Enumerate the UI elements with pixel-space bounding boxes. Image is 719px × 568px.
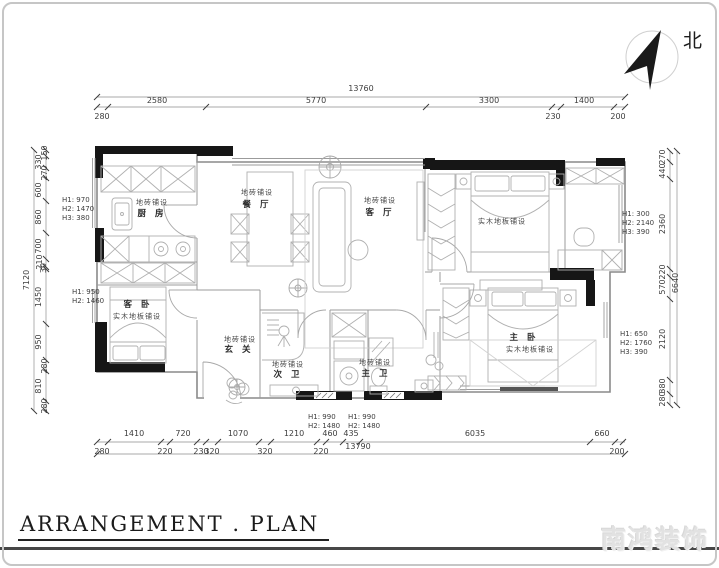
windows bbox=[93, 158, 623, 390]
dim-bottom-seg: 660 bbox=[594, 430, 609, 438]
dim-left-seg: 30 bbox=[40, 263, 48, 273]
room-label-foyer: 玄 关 bbox=[225, 346, 254, 355]
dim-top-seg: 3300 bbox=[479, 97, 499, 105]
room-label-living: 客 厅 bbox=[366, 209, 395, 218]
floor-label-bedroom2: 实木地板铺设 bbox=[478, 219, 526, 226]
dim-left-seg: 950 bbox=[35, 334, 43, 349]
dining-table bbox=[231, 172, 309, 266]
annotation-line: H1: 990 bbox=[308, 413, 340, 422]
page-title: ARRANGEMENT . PLAN bbox=[18, 512, 329, 541]
dim-bottom-edge: 200 bbox=[609, 448, 624, 456]
dim-left-seg: 280 bbox=[41, 398, 49, 413]
window-annotation-master: H1: 650 H2: 1760 H3: 390 bbox=[620, 330, 652, 357]
floor-label-bath1: 地砖铺设 bbox=[359, 360, 391, 367]
floorplan-page: 13760 2580 5770 3300 1400 280 230 200 14… bbox=[0, 0, 719, 568]
dim-bottom-seg: 1210 bbox=[284, 430, 304, 438]
dim-top-seg: 2580 bbox=[147, 97, 167, 105]
annotation-line: H3: 390 bbox=[620, 348, 652, 357]
annotation-line: H2: 1760 bbox=[620, 339, 652, 348]
dim-left-seg: 600 bbox=[35, 182, 43, 197]
annotation-line: H3: 380 bbox=[62, 214, 94, 223]
dim-left-seg: 700 bbox=[35, 238, 43, 253]
dim-left-seg: 280 bbox=[41, 358, 49, 373]
dim-bottom-seg: 1410 bbox=[124, 430, 144, 438]
room-label-dining: 餐 厅 bbox=[243, 201, 272, 210]
room-label-bath2: 次 卫 bbox=[274, 371, 303, 380]
dim-right-seg: 280 bbox=[659, 391, 667, 406]
dim-bottom-edge: 280 bbox=[94, 448, 109, 456]
bedroom2-furniture bbox=[428, 172, 564, 290]
dim-right-total: 6640 bbox=[672, 273, 680, 293]
room-label-master: 主 卧 bbox=[510, 334, 539, 343]
watermark: 南鸿装饰 bbox=[601, 520, 709, 556]
annotation-line: H1: 990 bbox=[348, 413, 380, 422]
floor-label-bath2: 地砖铺设 bbox=[272, 362, 304, 369]
dim-bottom-seg: 460 bbox=[322, 430, 337, 438]
dim-top-edge: 280 bbox=[94, 113, 109, 121]
bathroom-fixtures bbox=[262, 313, 438, 396]
floor-label-guest: 实木地板铺设 bbox=[113, 314, 161, 321]
annotation-line: H1: 970 bbox=[62, 196, 94, 205]
window-annotation-bath1: H1: 990 H2: 1480 bbox=[348, 413, 380, 431]
dim-bottom-edge: 220 bbox=[157, 448, 172, 456]
floor-label-foyer: 地砖铺设 bbox=[224, 337, 256, 344]
floor-label-living: 地砖铺设 bbox=[364, 198, 396, 205]
floor-label-kitchen: 地砖铺设 bbox=[136, 200, 168, 207]
dim-bottom-edge: 220 bbox=[313, 448, 328, 456]
annotation-line: H3: 390 bbox=[622, 228, 654, 237]
north-label: 北 bbox=[683, 26, 702, 53]
dim-bottom-seg: 435 bbox=[343, 430, 358, 438]
floor-label-master: 实木地板铺设 bbox=[506, 347, 554, 354]
room-label-kitchen: 厨 房 bbox=[138, 210, 167, 219]
dim-left-seg: 270 bbox=[41, 165, 49, 180]
dim-top-total: 13760 bbox=[348, 85, 373, 93]
dim-right-seg: 570 bbox=[659, 279, 667, 294]
dim-bottom-seg: 1070 bbox=[228, 430, 248, 438]
north-compass-icon bbox=[624, 30, 678, 90]
dim-bottom-total: 13790 bbox=[345, 443, 370, 451]
annotation-line: H2: 2140 bbox=[622, 219, 654, 228]
window-annotation-study: H1: 300 H2: 2140 H3: 390 bbox=[622, 210, 654, 237]
annotation-line: H2: 1460 bbox=[72, 297, 104, 306]
window-annotation-bath2: H1: 990 H2: 1480 bbox=[308, 413, 340, 431]
floor-label-dining: 地砖铺设 bbox=[241, 190, 273, 197]
window-annotation-kitchen: H1: 970 H2: 1470 H3: 380 bbox=[62, 196, 94, 223]
dim-right-seg: 270 bbox=[659, 149, 667, 164]
window-annotation-guest: H1: 950 H2: 1460 bbox=[72, 288, 104, 306]
dim-left-seg: 860 bbox=[35, 209, 43, 224]
annotation-line: H2: 1480 bbox=[308, 422, 340, 431]
dim-top-seg: 5770 bbox=[306, 97, 326, 105]
dim-top-edge: 230 bbox=[545, 113, 560, 121]
dim-top-edge: 200 bbox=[610, 113, 625, 121]
guest-closet bbox=[101, 263, 195, 283]
dim-right-seg: 2360 bbox=[659, 214, 667, 234]
dim-right-seg: 220 bbox=[659, 264, 667, 279]
study-desk bbox=[558, 168, 624, 270]
annotation-line: H1: 950 bbox=[72, 288, 104, 297]
dim-bottom-seg: 720 bbox=[175, 430, 190, 438]
room-label-bath1: 主 卫 bbox=[362, 370, 391, 379]
dim-left-seg: 810 bbox=[35, 378, 43, 393]
annotation-line: H2: 1480 bbox=[348, 422, 380, 431]
dim-bottom-edge: 320 bbox=[204, 448, 219, 456]
dim-right-seg: 2120 bbox=[659, 329, 667, 349]
dim-bottom-seg: 6035 bbox=[465, 430, 485, 438]
room-label-guest: 客 卧 bbox=[124, 301, 153, 310]
annotation-line: H1: 300 bbox=[622, 210, 654, 219]
annotation-line: H1: 650 bbox=[620, 330, 652, 339]
dim-left-seg: 1450 bbox=[35, 287, 43, 307]
dim-left-total: 7120 bbox=[23, 270, 31, 290]
dim-top-seg: 1400 bbox=[574, 97, 594, 105]
annotation-line: H2: 1470 bbox=[62, 205, 94, 214]
dim-right-seg: 440 bbox=[659, 163, 667, 178]
guest-bed bbox=[110, 287, 166, 363]
dim-bottom-edge: 320 bbox=[257, 448, 272, 456]
